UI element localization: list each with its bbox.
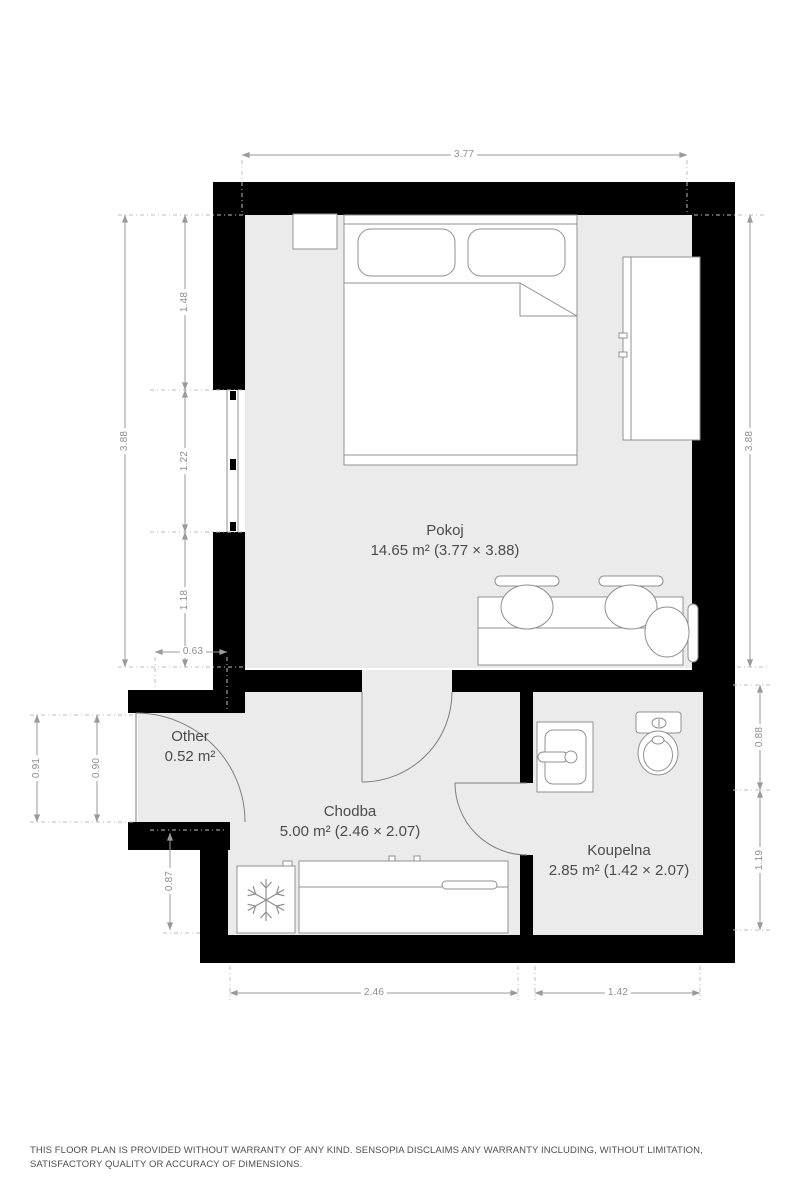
room-area: 2.85 m² (1.42 × 2.07) — [549, 861, 690, 881]
room-name: Koupelna — [549, 841, 690, 861]
counter-knob — [414, 856, 420, 861]
dim-left-step: 0.87 — [164, 868, 176, 894]
dim-left-total: 3.88 — [119, 428, 131, 454]
room-name: Pokoj — [371, 521, 520, 541]
room-name: Other — [165, 727, 216, 747]
dim-left-upper: 1.48 — [179, 289, 191, 315]
bed — [344, 215, 577, 465]
wall-pokoj-bottom-right — [452, 670, 703, 692]
dim-left-window: 1.22 — [179, 448, 191, 474]
dim-left-lower: 1.18 — [179, 587, 191, 613]
wall-pokoj-bottom-left — [213, 670, 362, 692]
wardrobe-handle — [619, 352, 627, 357]
kitchen-counter — [299, 856, 508, 933]
wall-chodba-left — [200, 850, 228, 935]
wall-other-bottom — [128, 822, 230, 850]
refrigerator — [237, 861, 295, 933]
counter-knob — [389, 856, 395, 861]
room-label-other: Other 0.52 m² — [165, 727, 216, 767]
floor-plan: 3.77 3.88 1.48 1.22 1.18 0.63 3.88 0.88 … — [0, 0, 800, 1200]
bath-door-gap — [520, 783, 533, 855]
room-label-pokoj: Pokoj 14.65 m² (3.77 × 3.88) — [371, 521, 520, 561]
wall-bath-left-upper — [520, 692, 533, 783]
room-area: 5.00 m² (2.46 × 2.07) — [280, 822, 421, 842]
dim-bath-lower: 1.19 — [754, 847, 766, 873]
nightstand — [293, 214, 337, 249]
wall-bottom — [200, 935, 735, 963]
dim-entry-outer: 0.91 — [31, 755, 43, 781]
dim-top-width: 3.77 — [451, 149, 477, 161]
fridge-handle — [283, 861, 292, 866]
cutting-board — [442, 881, 497, 889]
faucet-knob — [565, 751, 577, 763]
pillow — [358, 229, 455, 276]
dim-entry-inner: 0.90 — [91, 755, 103, 781]
washbasin — [537, 722, 593, 792]
room-area: 0.52 m² — [165, 747, 216, 767]
faucet — [538, 752, 568, 762]
dim-bath-upper: 0.88 — [754, 724, 766, 750]
wall-right-lower — [703, 692, 735, 963]
wardrobe-handle — [619, 333, 627, 338]
dim-right-total: 3.88 — [744, 428, 756, 454]
floor-plan-drawing — [0, 0, 800, 1200]
pokoj-door-gap — [362, 670, 452, 692]
wardrobe — [619, 257, 700, 440]
wall-bath-left-lower — [520, 855, 533, 935]
disclaimer-text: THIS FLOOR PLAN IS PROVIDED WITHOUT WARR… — [30, 1144, 765, 1172]
room-label-koupelna: Koupelna 2.85 m² (1.42 × 2.07) — [549, 841, 690, 881]
room-name: Chodba — [280, 802, 421, 822]
dim-offset: 0.63 — [180, 646, 206, 658]
room-label-chodba: Chodba 5.00 m² (2.46 × 2.07) — [280, 802, 421, 842]
pillow — [468, 229, 565, 276]
wall-top — [213, 182, 735, 215]
dim-bottom-chodba: 2.46 — [361, 987, 387, 999]
toilet — [636, 712, 681, 775]
room-area: 14.65 m² (3.77 × 3.88) — [371, 541, 520, 561]
dim-bottom-koupelna: 1.42 — [605, 987, 631, 999]
window — [213, 390, 245, 532]
